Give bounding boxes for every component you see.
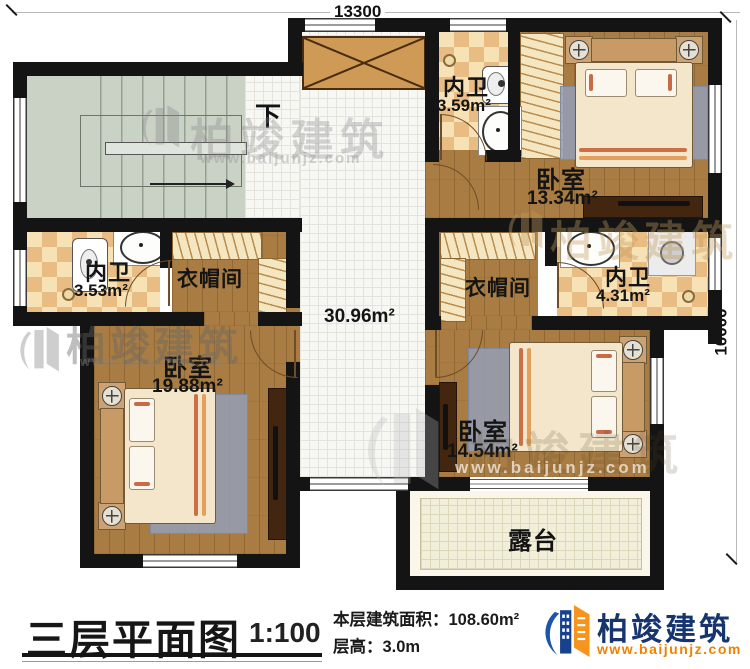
sink-drain xyxy=(139,243,143,247)
dimension-line-right xyxy=(736,20,737,565)
window xyxy=(13,98,27,202)
wall xyxy=(508,32,520,162)
window xyxy=(13,250,27,306)
room-area-bedroom-br: 14.54m² xyxy=(447,441,518,463)
floor-plan-page: 13300 10000 xyxy=(0,0,750,669)
wardrobe-box xyxy=(302,36,426,90)
hanger-rail xyxy=(440,258,466,322)
building-area-line: 本层建筑面积：108.60m² xyxy=(333,607,519,634)
brand-url: www.baijunjz.com xyxy=(597,641,742,657)
wall xyxy=(588,477,664,491)
room-area-hall: 30.96m² xyxy=(324,306,395,328)
wall xyxy=(425,316,441,330)
wall xyxy=(545,232,557,266)
title-underline-thin xyxy=(22,661,322,662)
floor-drain-icon xyxy=(682,290,695,303)
brand-logo-icon xyxy=(541,600,593,662)
stairs-down-label: 下 xyxy=(255,96,282,133)
building-area-value: 108.60m² xyxy=(449,611,520,629)
window xyxy=(310,477,408,491)
wall xyxy=(80,312,94,568)
wall xyxy=(13,62,303,76)
sink-drain xyxy=(496,128,500,132)
window xyxy=(650,358,664,424)
tv-icon xyxy=(273,426,278,500)
window xyxy=(708,238,722,290)
wall xyxy=(532,316,722,330)
hanger-rail xyxy=(520,33,564,159)
wall xyxy=(286,218,300,308)
room-area-bedroom-bl: 19.88m² xyxy=(152,376,223,398)
tv-icon xyxy=(618,201,690,206)
room-area-bath-left: 3.53m² xyxy=(74,281,128,301)
wall xyxy=(425,385,439,477)
tv-cabinet xyxy=(268,388,288,540)
watermark-logo-icon xyxy=(16,322,62,378)
dimension-tick xyxy=(5,4,17,16)
window xyxy=(305,18,375,32)
hall-floor xyxy=(300,32,425,477)
floor-height-line: 层高：3.0m xyxy=(333,634,519,661)
building-info: 本层建筑面积：108.60m² 层高：3.0m xyxy=(333,607,519,661)
room-label-closet-left: 衣帽间 xyxy=(177,263,243,293)
wall xyxy=(396,576,664,590)
stair-handrail xyxy=(105,142,247,155)
room-area-bath-top: 3.59m² xyxy=(437,96,491,116)
tv-cabinet xyxy=(583,196,703,218)
room-area-bath-right: 4.31m² xyxy=(596,286,650,306)
window xyxy=(143,554,237,568)
wardrobe-x-icon xyxy=(304,38,424,88)
floor-height-label: 层高： xyxy=(333,638,383,656)
wall xyxy=(94,312,204,326)
wall xyxy=(444,477,470,491)
bed xyxy=(565,36,701,168)
scale-label: 1:100 xyxy=(249,617,321,649)
floor-drain-icon xyxy=(443,54,456,67)
wall xyxy=(13,218,302,232)
floor-plan-title: 三层平面图 xyxy=(26,606,241,666)
washer-icon xyxy=(648,230,696,276)
wall xyxy=(708,18,722,344)
floor-height-value: 3.0m xyxy=(383,638,421,656)
sink-drain xyxy=(587,244,591,248)
door-leaf xyxy=(435,330,437,377)
title-underline xyxy=(22,653,322,657)
window xyxy=(708,85,722,173)
terrace-sliding-door xyxy=(470,479,588,489)
door-leaf xyxy=(294,330,296,377)
hanger-rail xyxy=(172,232,262,260)
closet-opening-floor xyxy=(204,312,258,326)
room-area-bedroom-tr: 13.34m² xyxy=(527,188,598,210)
wall xyxy=(485,150,521,162)
door-leaf xyxy=(440,114,442,160)
room-label-terrace: 露台 xyxy=(508,521,558,556)
wall xyxy=(425,218,722,232)
hanger-rail xyxy=(440,232,536,260)
bed xyxy=(98,382,218,528)
wall xyxy=(288,18,302,76)
building-area-label: 本层建筑面积： xyxy=(333,611,449,629)
door-leaf xyxy=(168,260,170,306)
stairs-arrow xyxy=(150,183,226,185)
wall xyxy=(286,362,300,568)
bed xyxy=(505,336,645,456)
stairs-arrow-head xyxy=(226,179,235,189)
window xyxy=(450,18,506,32)
wall xyxy=(258,312,302,326)
door-leaf xyxy=(557,262,559,308)
room-label-closet-right: 衣帽间 xyxy=(465,272,531,302)
wall xyxy=(425,18,439,162)
